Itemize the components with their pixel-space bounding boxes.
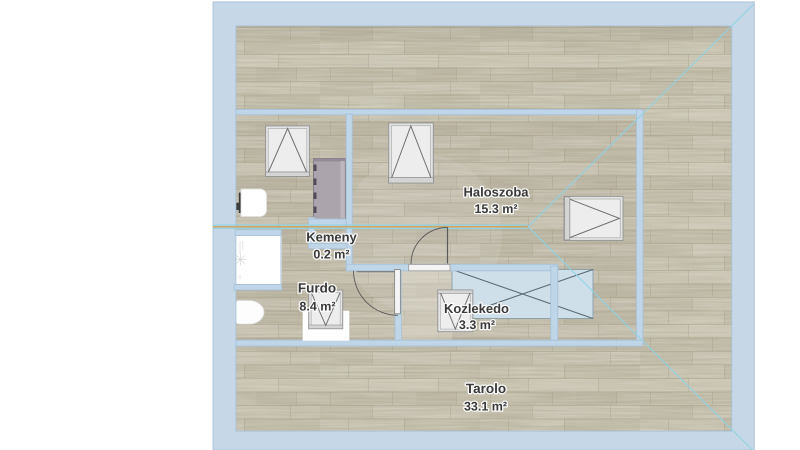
svg-text:Kemeny: Kemeny	[306, 230, 357, 245]
svg-text:15.3 m²: 15.3 m²	[474, 202, 517, 216]
svg-text:Tarolo: Tarolo	[466, 381, 506, 396]
svg-text:Kozlekedo: Kozlekedo	[444, 301, 509, 316]
svg-text:8.4 m²: 8.4 m²	[299, 299, 335, 313]
svg-text:33.1 m²: 33.1 m²	[464, 400, 507, 414]
svg-text:0.2 m²: 0.2 m²	[313, 248, 349, 262]
svg-text:Haloszoba: Haloszoba	[463, 184, 529, 199]
svg-text:3.3 m²: 3.3 m²	[459, 318, 495, 332]
svg-text:Furdo: Furdo	[298, 281, 336, 296]
